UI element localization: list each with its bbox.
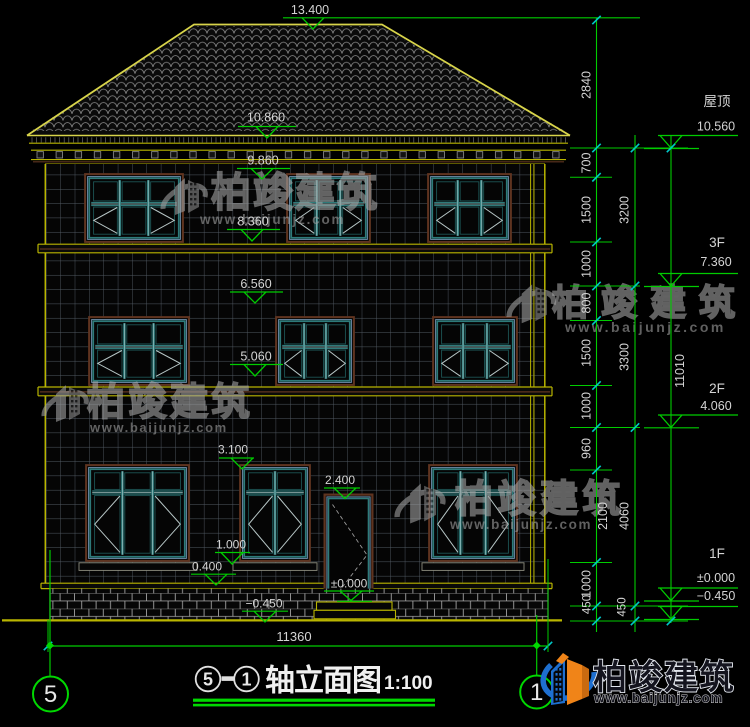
svg-text:1: 1 — [241, 670, 251, 690]
svg-text:www.baijunjz.com: www.baijunjz.com — [593, 691, 723, 706]
svg-text:www.baijunjz.com: www.baijunjz.com — [199, 212, 345, 227]
svg-text:450: 450 — [617, 597, 629, 616]
svg-text:1:100: 1:100 — [384, 673, 433, 694]
svg-text:1000: 1000 — [580, 570, 594, 598]
svg-text:轴立面图: 轴立面图 — [265, 664, 381, 698]
svg-text:www.baijunjz.com: www.baijunjz.com — [449, 517, 592, 532]
svg-text:±0.000: ±0.000 — [697, 571, 735, 585]
svg-text:1500: 1500 — [580, 196, 594, 224]
svg-text:9.860: 9.860 — [247, 154, 278, 168]
svg-text:6.560: 6.560 — [240, 277, 271, 291]
svg-text:www.baijunjz.com: www.baijunjz.com — [564, 319, 726, 335]
svg-text:8.360: 8.360 — [237, 215, 268, 229]
svg-text:0.400: 0.400 — [192, 560, 222, 574]
svg-text:5.060: 5.060 — [240, 350, 271, 364]
svg-text:450: 450 — [582, 595, 594, 614]
svg-text:±0.000: ±0.000 — [331, 577, 368, 591]
svg-text:800: 800 — [580, 293, 594, 314]
svg-text:1F: 1F — [709, 546, 725, 561]
svg-text:4.060: 4.060 — [700, 399, 731, 413]
svg-text:13.400: 13.400 — [291, 3, 329, 17]
svg-text:1500: 1500 — [580, 339, 594, 367]
svg-text:柏竣建筑: 柏竣建筑 — [211, 171, 379, 215]
svg-text:700: 700 — [580, 153, 594, 174]
svg-text:11360: 11360 — [276, 629, 311, 644]
svg-text:1.000: 1.000 — [216, 538, 246, 552]
svg-text:柏竣建筑: 柏竣建筑 — [87, 382, 253, 424]
svg-text:−0.450: −0.450 — [245, 597, 282, 611]
svg-text:2F: 2F — [709, 381, 725, 396]
svg-text:2100: 2100 — [596, 502, 610, 530]
svg-text:3300: 3300 — [618, 343, 632, 371]
svg-text:3200: 3200 — [618, 196, 632, 224]
svg-text:1000: 1000 — [580, 250, 594, 278]
svg-text:10.560: 10.560 — [697, 120, 735, 134]
svg-text:2.400: 2.400 — [325, 473, 355, 487]
svg-text:www.baijunjz.com: www.baijunjz.com — [89, 420, 228, 435]
svg-text:1000: 1000 — [580, 392, 594, 420]
svg-text:3F: 3F — [709, 235, 725, 250]
svg-text:3.100: 3.100 — [218, 443, 248, 457]
svg-text:7.360: 7.360 — [700, 255, 731, 269]
svg-text:11010: 11010 — [673, 354, 687, 388]
svg-text:2840: 2840 — [580, 71, 594, 99]
svg-text:960: 960 — [580, 438, 594, 459]
svg-text:−0.450: −0.450 — [697, 589, 736, 603]
svg-text:屋顶: 屋顶 — [704, 94, 731, 109]
svg-text:4060: 4060 — [618, 502, 632, 530]
svg-text:5: 5 — [44, 681, 57, 708]
svg-text:5: 5 — [203, 670, 213, 690]
svg-text:10.860: 10.860 — [247, 111, 285, 125]
